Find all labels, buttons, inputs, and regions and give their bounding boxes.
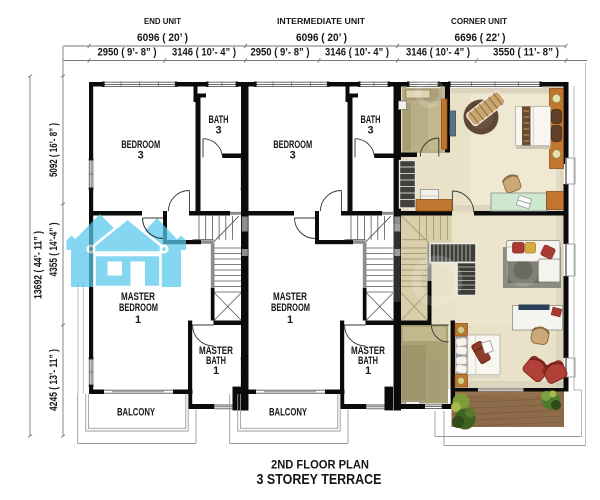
svg-text:2950 ( 9’- 8” ): 2950 ( 9’- 8” )	[251, 47, 310, 59]
svg-text:INTERMEDIATE UNIT: INTERMEDIATE UNIT	[277, 16, 366, 26]
svg-text:6096 ( 20’ ): 6096 ( 20’ )	[137, 32, 188, 44]
svg-text:6696 ( 22’ ): 6696 ( 22’ )	[455, 32, 506, 44]
svg-text:3 STOREY TERRACE: 3 STOREY TERRACE	[257, 472, 382, 488]
svg-text:3146 ( 10’- 4” ): 3146 ( 10’- 4” )	[406, 47, 470, 59]
svg-text:3550 ( 11’- 8” ): 3550 ( 11’- 8” )	[493, 47, 559, 59]
svg-text:6096 ( 20’ ): 6096 ( 20’ )	[296, 32, 347, 44]
svg-text:3146 ( 10’- 4” ): 3146 ( 10’- 4” )	[325, 47, 389, 59]
svg-text:13692 ( 44’- 11” ): 13692 ( 44’- 11” )	[33, 231, 45, 299]
svg-text:3146 ( 10’- 4” ): 3146 ( 10’- 4” )	[172, 47, 236, 59]
svg-text:2950 ( 9’- 8” ): 2950 ( 9’- 8” )	[98, 47, 157, 59]
svg-text:4355 ( 14’-4” ): 4355 ( 14’-4” )	[48, 222, 60, 276]
svg-text:5092 ( 16’- 8” ): 5092 ( 16’- 8” )	[48, 123, 60, 177]
svg-text:2ND FLOOR PLAN: 2ND FLOOR PLAN	[271, 457, 369, 471]
svg-text:END UNIT: END UNIT	[144, 16, 182, 26]
svg-text:CORNER UNIT: CORNER UNIT	[451, 16, 508, 26]
svg-text:4245 ( 13’- 11” ): 4245 ( 13’- 11” )	[48, 349, 60, 411]
